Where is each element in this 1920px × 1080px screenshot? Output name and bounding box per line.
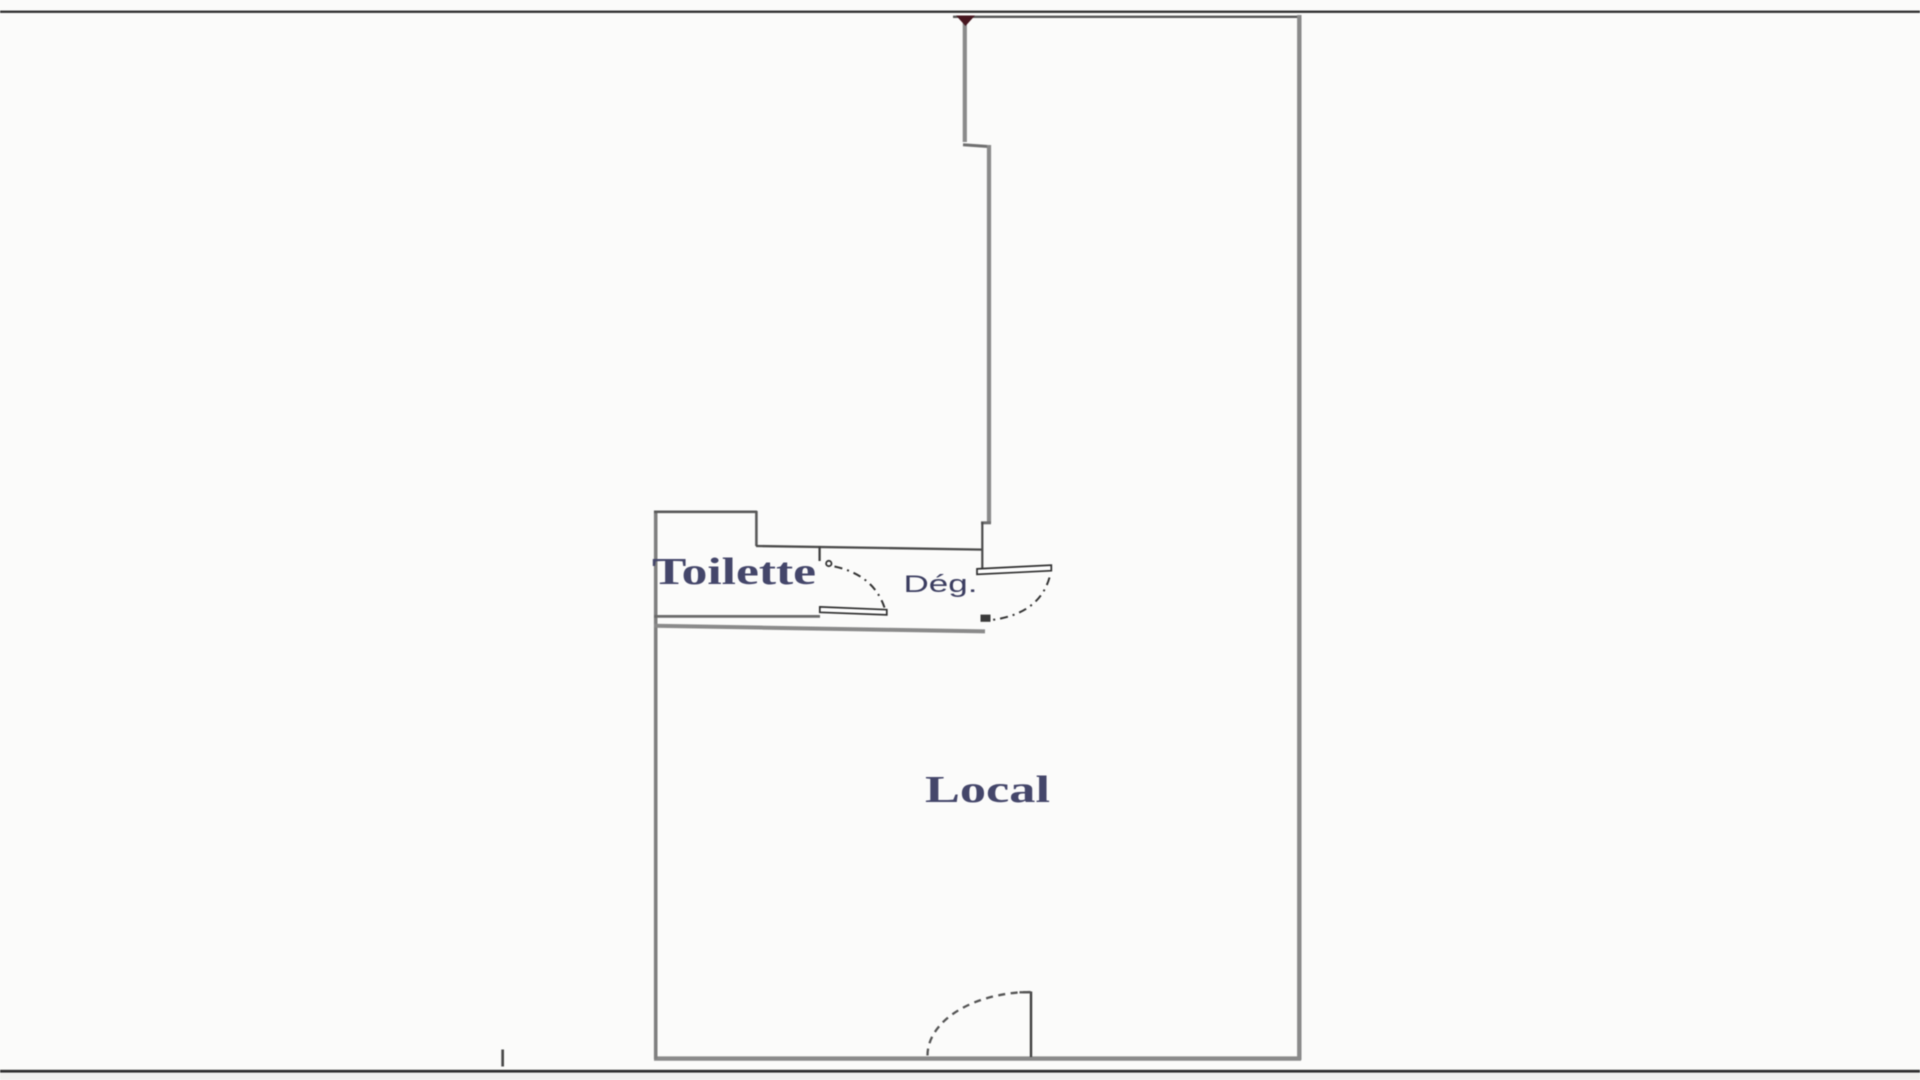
svg-text:Toilette: Toilette <box>652 551 816 593</box>
svg-text:Local: Local <box>925 769 1050 811</box>
svg-text:Dég.: Dég. <box>904 571 978 598</box>
